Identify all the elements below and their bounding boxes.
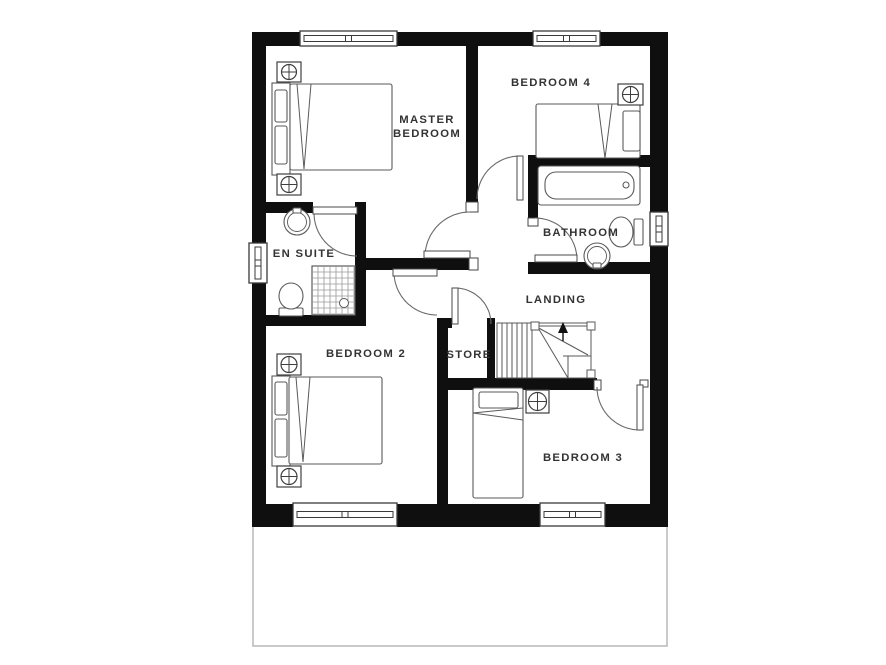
room-label-bedroom-2: BEDROOM 2: [326, 348, 406, 360]
ceiling-light-icon: [277, 62, 301, 82]
wall: [437, 318, 452, 328]
stair-newel: [587, 370, 595, 378]
bedroom-3-window: [540, 503, 605, 526]
door-leaf: [313, 207, 357, 214]
door-swing-arc: [425, 212, 470, 257]
bed-pillow: [479, 392, 518, 408]
sink-tap: [593, 263, 601, 268]
wall: [397, 32, 533, 46]
ceiling-light-icon: [277, 174, 301, 195]
door-swing-arc: [597, 387, 640, 430]
door-leaf: [517, 156, 523, 200]
window-divider: [255, 260, 261, 266]
bathroom-window: [650, 212, 668, 246]
master-bedroom-door: [424, 212, 470, 258]
room-label-master-bedroom: MASTER: [399, 114, 455, 126]
room-label-bedroom-3: BEDROOM 3: [543, 452, 623, 464]
bedroom-3-bed: [473, 388, 523, 498]
shower-drain: [340, 299, 349, 308]
bedroom-4-bed: [536, 104, 640, 158]
bed-pillow: [275, 126, 287, 164]
door-leaf: [452, 288, 458, 324]
bathroom-sink: [584, 243, 610, 269]
ceiling-light-icon: [277, 466, 301, 487]
wall: [437, 318, 448, 508]
bedroom-2-door: [393, 269, 437, 315]
room-label-landing: LANDING: [526, 294, 587, 306]
master-bedroom-window: [300, 31, 397, 46]
bed-pillow: [623, 111, 640, 151]
window-divider: [346, 36, 352, 42]
window-divider: [570, 512, 576, 518]
room-label-master-bedroom: BEDROOM: [393, 128, 461, 140]
room-label-bathroom: BATHROOM: [543, 227, 619, 239]
wall: [650, 246, 668, 527]
ceiling-light-icon: [618, 84, 643, 105]
en-suite-window: [249, 243, 267, 283]
bedroom-4-window: [533, 31, 600, 46]
ceiling-light-icon: [277, 354, 301, 375]
bathtub-drain: [623, 182, 629, 188]
door-jamb: [469, 258, 478, 270]
bed-pillow: [275, 382, 287, 415]
door-swing-arc: [455, 288, 491, 324]
door-leaf: [637, 385, 643, 430]
door-jamb: [466, 202, 478, 212]
door-leaf: [535, 255, 577, 262]
floorplan-drawing: MASTERBEDROOMBEDROOM 4BATHROOMEN SUITELA…: [0, 0, 886, 665]
wall: [466, 46, 478, 202]
bathtub: [538, 166, 640, 205]
wall: [252, 32, 266, 243]
door-swing-arc: [477, 156, 520, 199]
wall: [397, 504, 540, 527]
wall: [362, 258, 469, 270]
wall: [650, 32, 668, 212]
store-door: [452, 288, 491, 324]
bedroom-2-bed: [272, 376, 382, 466]
lower-floor-outline: [253, 524, 667, 646]
wall: [252, 283, 266, 527]
sink-tap: [293, 208, 301, 213]
shower: [312, 266, 355, 315]
bathroom-door: [535, 218, 577, 262]
bathtub-basin: [545, 172, 634, 199]
window-divider: [342, 512, 348, 518]
bedroom-3-door: [597, 385, 643, 430]
bedroom-2-window: [293, 503, 397, 526]
room-label-store: STORE: [446, 349, 491, 361]
bed-pillow: [275, 419, 287, 457]
wall: [266, 315, 366, 326]
en-suite-toilet: [279, 283, 303, 316]
window-divider: [656, 226, 662, 232]
stair-newel: [587, 322, 595, 330]
bedroom-4-door: [477, 156, 523, 200]
door-jamb: [528, 218, 538, 226]
stair-newel: [531, 322, 539, 330]
wall: [528, 155, 538, 218]
room-label-bedroom-4: BEDROOM 4: [511, 77, 591, 89]
ceiling-light-icon: [526, 390, 549, 413]
toilet-bowl: [279, 283, 303, 309]
bed-pillow: [275, 90, 287, 122]
door-leaf: [393, 269, 437, 276]
door-swing-arc: [535, 218, 577, 260]
sink-basin-inner: [288, 213, 307, 232]
room-label-en-suite: EN SUITE: [273, 248, 336, 260]
door-leaf: [424, 251, 470, 258]
master-bed: [272, 83, 392, 175]
staircase: [497, 322, 595, 378]
floorplan-page: MASTERBEDROOMBEDROOM 4BATHROOMEN SUITELA…: [0, 0, 886, 665]
door-swing-arc: [394, 272, 437, 315]
bed-mattress: [289, 377, 382, 464]
en-suite-sink: [284, 208, 310, 235]
toilet-cistern: [634, 219, 643, 245]
window-divider: [564, 36, 570, 42]
